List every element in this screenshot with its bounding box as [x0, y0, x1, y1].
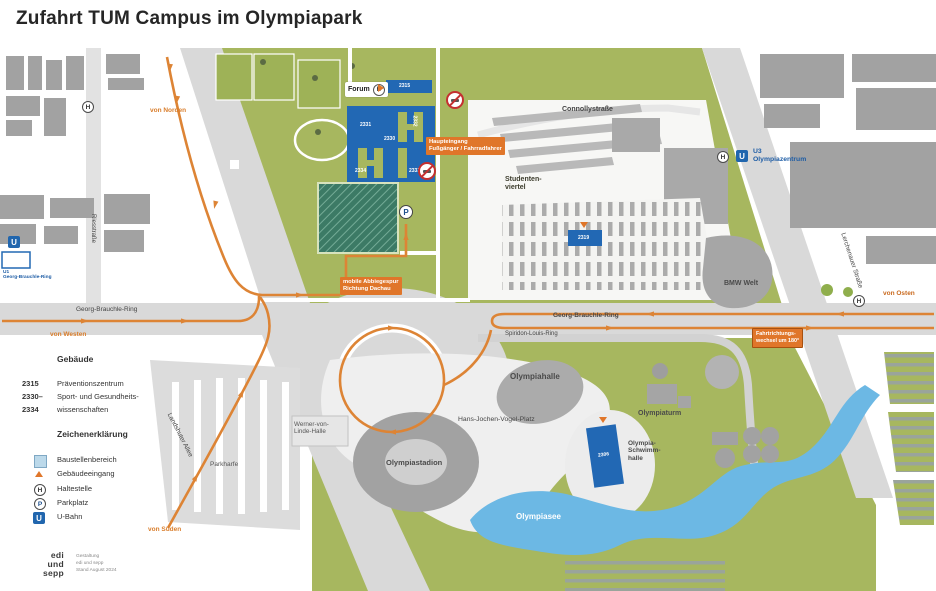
- student-village-bars: [502, 198, 716, 290]
- street-label-georg-brauchle-ring-west: Georg-Brauchle-Ring: [76, 306, 137, 313]
- building-number-2319: 2319: [578, 235, 589, 241]
- forum-label: Forum: [348, 86, 370, 93]
- legend-symbol-label: U-Bahn: [57, 513, 82, 521]
- direction-label-von-osten: von Osten: [883, 290, 915, 297]
- entrance-icon: [378, 84, 384, 92]
- stop-icon-northwest: H: [82, 101, 94, 113]
- tree: [843, 287, 853, 297]
- legend-buildings-heading: Gebäude: [57, 355, 93, 365]
- station-label-u3-olympiazentrum: U3Olympiazentrum: [753, 148, 806, 163]
- place-label-olympia-schwimmhalle: Olympia-Schwimm-halle: [628, 440, 661, 462]
- direction-label-von-norden: von Norden: [150, 107, 186, 114]
- legend-building-number: 2334: [22, 406, 39, 414]
- legend-symbols-heading: Zeichenerklärung: [57, 430, 128, 440]
- place-label-hans-jochen-vogel-platz: Hans-Jochen-Vogel-Platz: [458, 416, 535, 424]
- info-box-fahrtrichtungswechsel: Fahrtrichtungs-wechsel um 180°: [752, 328, 803, 348]
- parking-legend-icon: P: [34, 498, 46, 510]
- place-label-olympiahalle: Olympiahalle: [510, 373, 560, 382]
- edi-und-sepp-logo: ediundsepp: [30, 551, 64, 578]
- gray-building: [647, 384, 677, 404]
- street-label-connollystrasse: Connollystraße: [562, 106, 613, 114]
- no-entry-icon: [418, 162, 436, 180]
- legend-symbol-label: Parkplatz: [57, 499, 88, 507]
- tree: [821, 284, 833, 296]
- stop-icon-east: H: [853, 295, 865, 307]
- building-number-2315: 2315: [399, 83, 410, 89]
- gray-building: [612, 118, 660, 152]
- street-label-georg-brauchle-ring-east: Georg-Brauchle-Ring: [553, 312, 619, 319]
- construction-area: [318, 183, 398, 253]
- gray-building: [678, 396, 691, 408]
- legend-building-number: 2315: [22, 380, 39, 388]
- gray-building: [705, 355, 739, 389]
- street-label-riesstrasse: Riesstraße: [89, 214, 96, 243]
- place-label-olympiastadion: Olympiastadion: [386, 459, 442, 467]
- legend-symbol-label: Haltestelle: [57, 485, 92, 493]
- place-label-olympiasee: Olympiasee: [516, 513, 561, 522]
- parking-lot-strip: [565, 558, 725, 591]
- direction-label-von-sueden: von Süden: [148, 526, 181, 533]
- stop-legend-icon: H: [34, 484, 46, 496]
- info-box-haupteingang: HaupteingangFußgänger / Fahrradfahrer: [426, 137, 505, 155]
- parking-lot-strip: [884, 352, 934, 404]
- street-label-spiridon-louis-ring: Spiridon-Louis-Ring: [505, 331, 558, 338]
- entrance-icon: [599, 417, 607, 423]
- riesstrasse-road: [86, 48, 101, 303]
- place-label-werner-von-linde-halle: Werner-von-Linde-Halle: [294, 421, 329, 435]
- ubahn-legend-icon: U: [33, 512, 45, 524]
- place-label-olympiaturm: Olympiaturm: [638, 410, 681, 418]
- ubahn-icon-u1: U: [8, 236, 20, 248]
- parking-lot-strip: [893, 480, 934, 525]
- place-label-parkharfe: Parkharfe: [210, 461, 238, 468]
- credits-text: Gestaltungedi und seppStand August 2024: [76, 553, 117, 575]
- place-label-bmw-welt: BMW Welt: [724, 280, 758, 288]
- stop-icon-u3: H: [717, 151, 729, 163]
- no-entry-icon: [446, 91, 464, 109]
- building-number-2334: 2334: [355, 168, 366, 174]
- station-label-u1-georg-brauchle-ring: U1Georg-Brauchle-Ring: [3, 270, 52, 281]
- olympiaturm-shape: [652, 363, 668, 379]
- ubahn-station-building: [2, 252, 30, 268]
- entrance-icon: [580, 222, 588, 228]
- info-box-mobile-abbiegespur: mobile AbbiegespurRichtung Dachau: [340, 277, 402, 295]
- map-canvas: Zufahrt TUM Campus im Olympiapark Georg-…: [0, 0, 936, 591]
- ubahn-icon-u3: U: [736, 150, 748, 162]
- legend-building-name: Präventionszentrum: [57, 380, 124, 388]
- building-number-2330: 2330: [384, 136, 395, 142]
- legend-building-number: 2330–: [22, 393, 43, 401]
- page-title: Zufahrt TUM Campus im Olympiapark: [16, 8, 363, 29]
- direction-label-von-westen: von Westen: [50, 331, 86, 338]
- building-entrance-icon: [35, 471, 43, 477]
- basemap-graphics: [0, 0, 936, 591]
- parking-lot-strip: [888, 412, 934, 472]
- parking-icon-campus: P: [399, 205, 413, 219]
- legend-symbol-label: Baustellenbereich: [57, 456, 117, 464]
- legend-building-name: wissenschaften: [57, 406, 108, 414]
- legend-symbol-label: Gebäudeeingang: [57, 470, 115, 478]
- legend-building-name: Sport- und Gesundheits-: [57, 393, 139, 401]
- building-number-2332: 2332: [412, 115, 418, 126]
- building-number-2331: 2331: [360, 122, 371, 128]
- construction-area-swatch-icon: [34, 455, 47, 468]
- place-label-studentenviertel: Studenten-viertel: [505, 176, 542, 192]
